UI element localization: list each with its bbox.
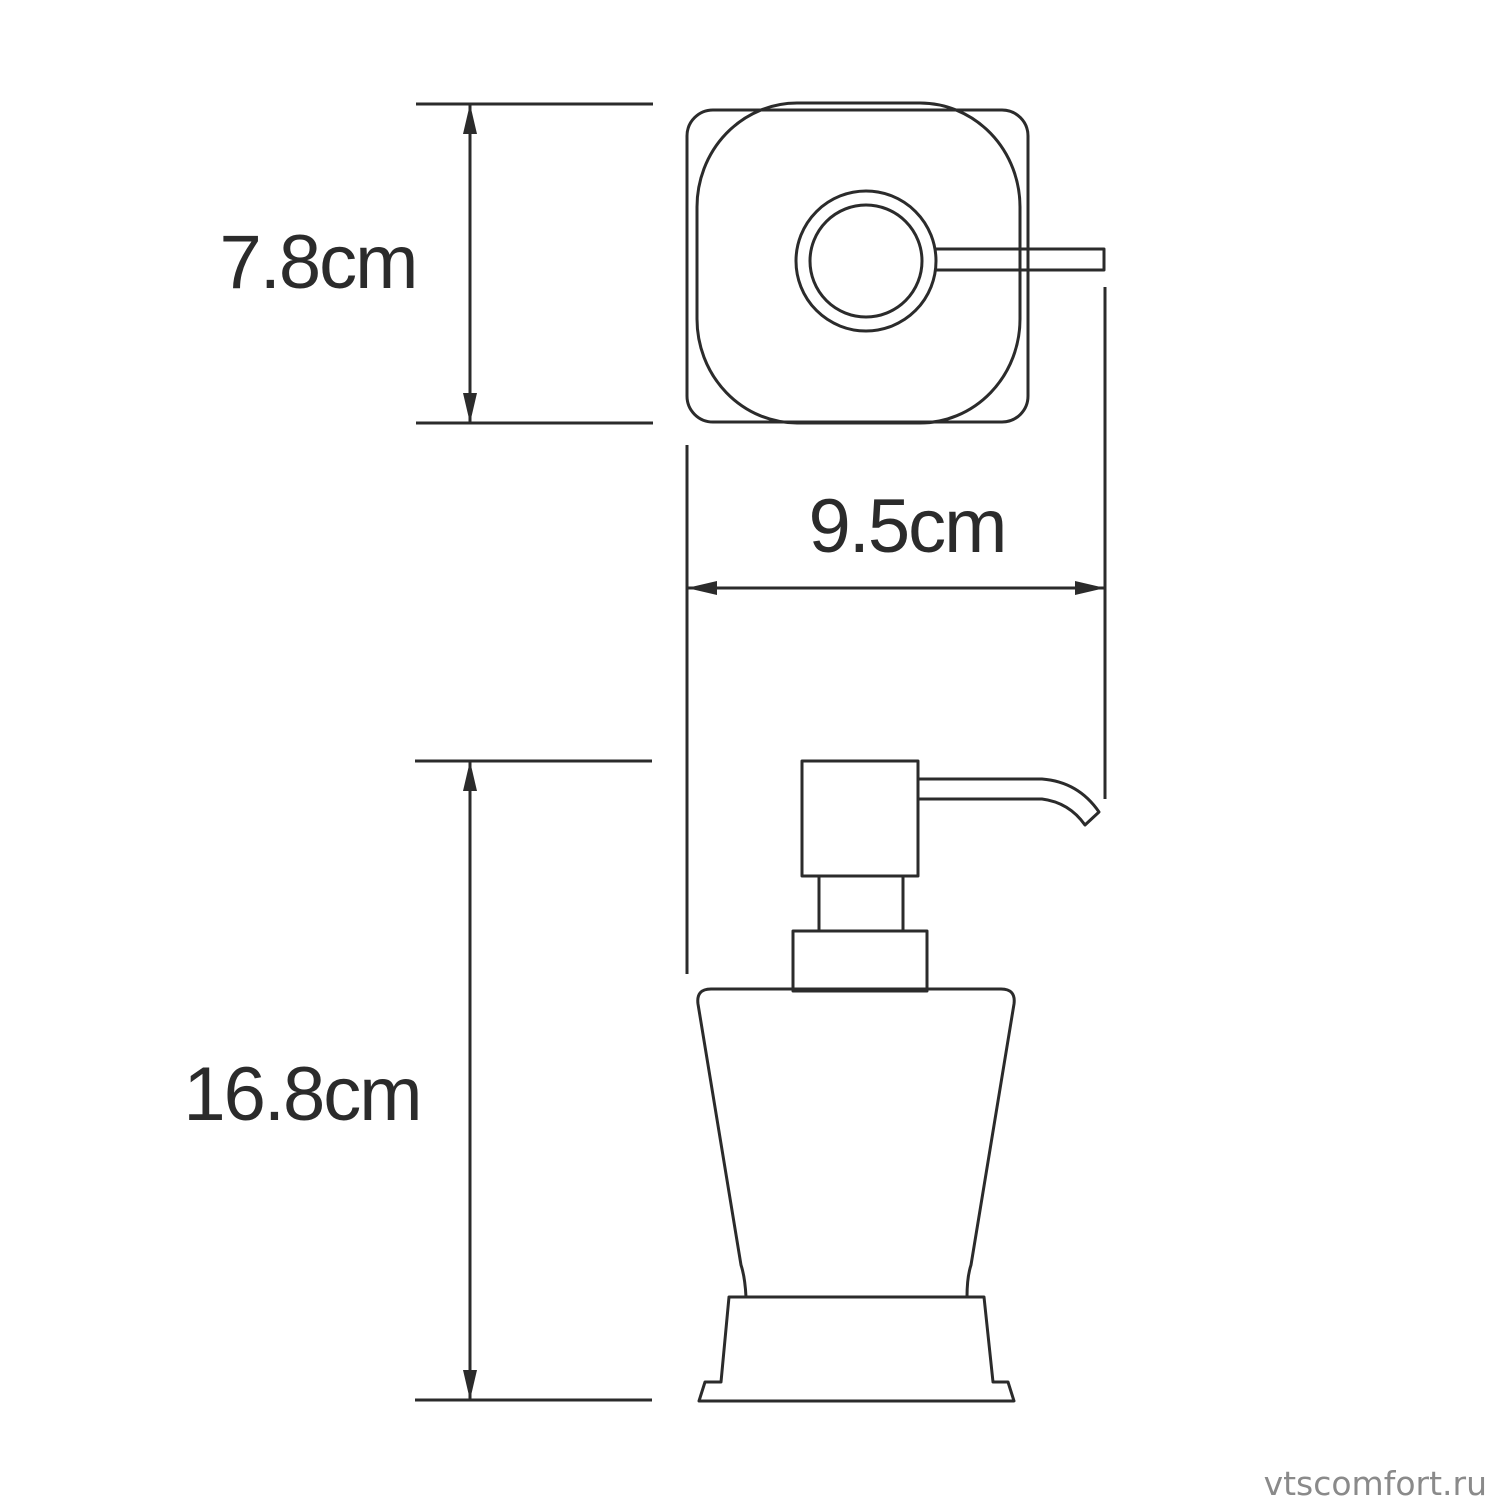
side-view-spout: [918, 779, 1099, 825]
drawing-canvas: 7.8cm 9.5cm 16.8cm vtscomfort.ru: [0, 0, 1496, 1506]
side-view-pump-collar: [793, 931, 927, 991]
side-view-bottle-body: [698, 989, 1014, 1297]
top-view-pump-collar-circle: [796, 191, 936, 331]
side-view-bottle-base: [699, 1297, 1014, 1401]
top-view-inner-body-outline: [697, 103, 1020, 423]
top-view-outer-body-outline: [687, 110, 1028, 422]
dimension-height-label: 16.8cm: [183, 1052, 420, 1137]
dimension-width-label: 9.5cm: [809, 484, 1006, 569]
dimension-depth-label: 7.8cm: [220, 220, 417, 305]
watermark: vtscomfort.ru: [1264, 1464, 1487, 1503]
side-view: [698, 761, 1099, 1401]
top-view-pump-circle: [810, 205, 922, 317]
top-view: [687, 103, 1104, 423]
dimension-width: 9.5cm: [687, 287, 1105, 974]
dimension-height: 16.8cm: [183, 761, 652, 1400]
side-view-pump-head: [802, 761, 918, 876]
side-view-pump-neck: [819, 876, 903, 931]
technical-drawing: 7.8cm 9.5cm 16.8cm vtscomfort.ru: [0, 0, 1496, 1506]
dimension-depth: 7.8cm: [220, 104, 653, 423]
